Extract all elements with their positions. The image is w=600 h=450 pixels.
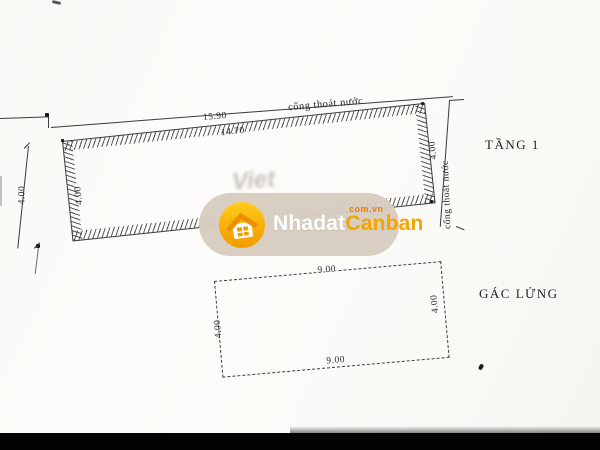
corner-dot-br <box>430 200 433 203</box>
corner-dot-tr <box>421 102 424 105</box>
house-icon-svg <box>219 202 265 248</box>
right-bracket-hook <box>456 226 465 230</box>
house-icon <box>219 202 265 248</box>
brand-first: Nhadat <box>273 212 345 235</box>
scan-speck-bottom <box>478 363 484 370</box>
right-drain-note: cống thoát nước <box>441 157 454 229</box>
corner-dot-tl <box>61 139 64 142</box>
mezz-dim-top: 9.00 <box>315 264 338 276</box>
mezz-dim-right: 4.00 <box>429 294 441 313</box>
boundary-line-left <box>0 116 48 119</box>
floor1-label: TẦNG 1 <box>485 137 540 153</box>
scan-speck-top <box>52 0 61 5</box>
boundary-step <box>48 116 49 128</box>
scanned-site-plan: 14.70 4.00 4.00 cống thoát nước 15.90 4.… <box>0 0 600 450</box>
scan-edge-artifact <box>0 176 2 206</box>
watermark-domain-suffix: com.vn <box>349 204 384 214</box>
mezz-dim-left: 4.00 <box>213 319 225 338</box>
watermark-brand: NhadatCanban <box>273 212 424 236</box>
watermark-pill: NhadatCanban com.vn <box>199 193 399 256</box>
left-dim-node <box>36 244 40 248</box>
mezz-dim-bottom: 9.00 <box>324 355 347 367</box>
left-dim-extension <box>35 247 39 274</box>
mezzanine-outline: 9.00 9.00 4.00 4.00 <box>214 261 450 378</box>
dim-frontage-inner: 14.70 <box>221 126 246 138</box>
mezzanine-label: GÁC LỬNG <box>479 286 559 302</box>
dim-right: 4.00 <box>427 140 439 160</box>
right-bracket-top <box>449 99 464 101</box>
dim-left-outer: 4.00 <box>17 186 27 205</box>
dim-frontage-outer: 15.90 <box>203 111 228 123</box>
dim-left-inner: 4.00 <box>73 186 85 206</box>
brand-second: Canban <box>345 212 423 235</box>
faint-scan-text: Viet <box>231 166 276 197</box>
bottom-black-bar <box>0 433 600 450</box>
